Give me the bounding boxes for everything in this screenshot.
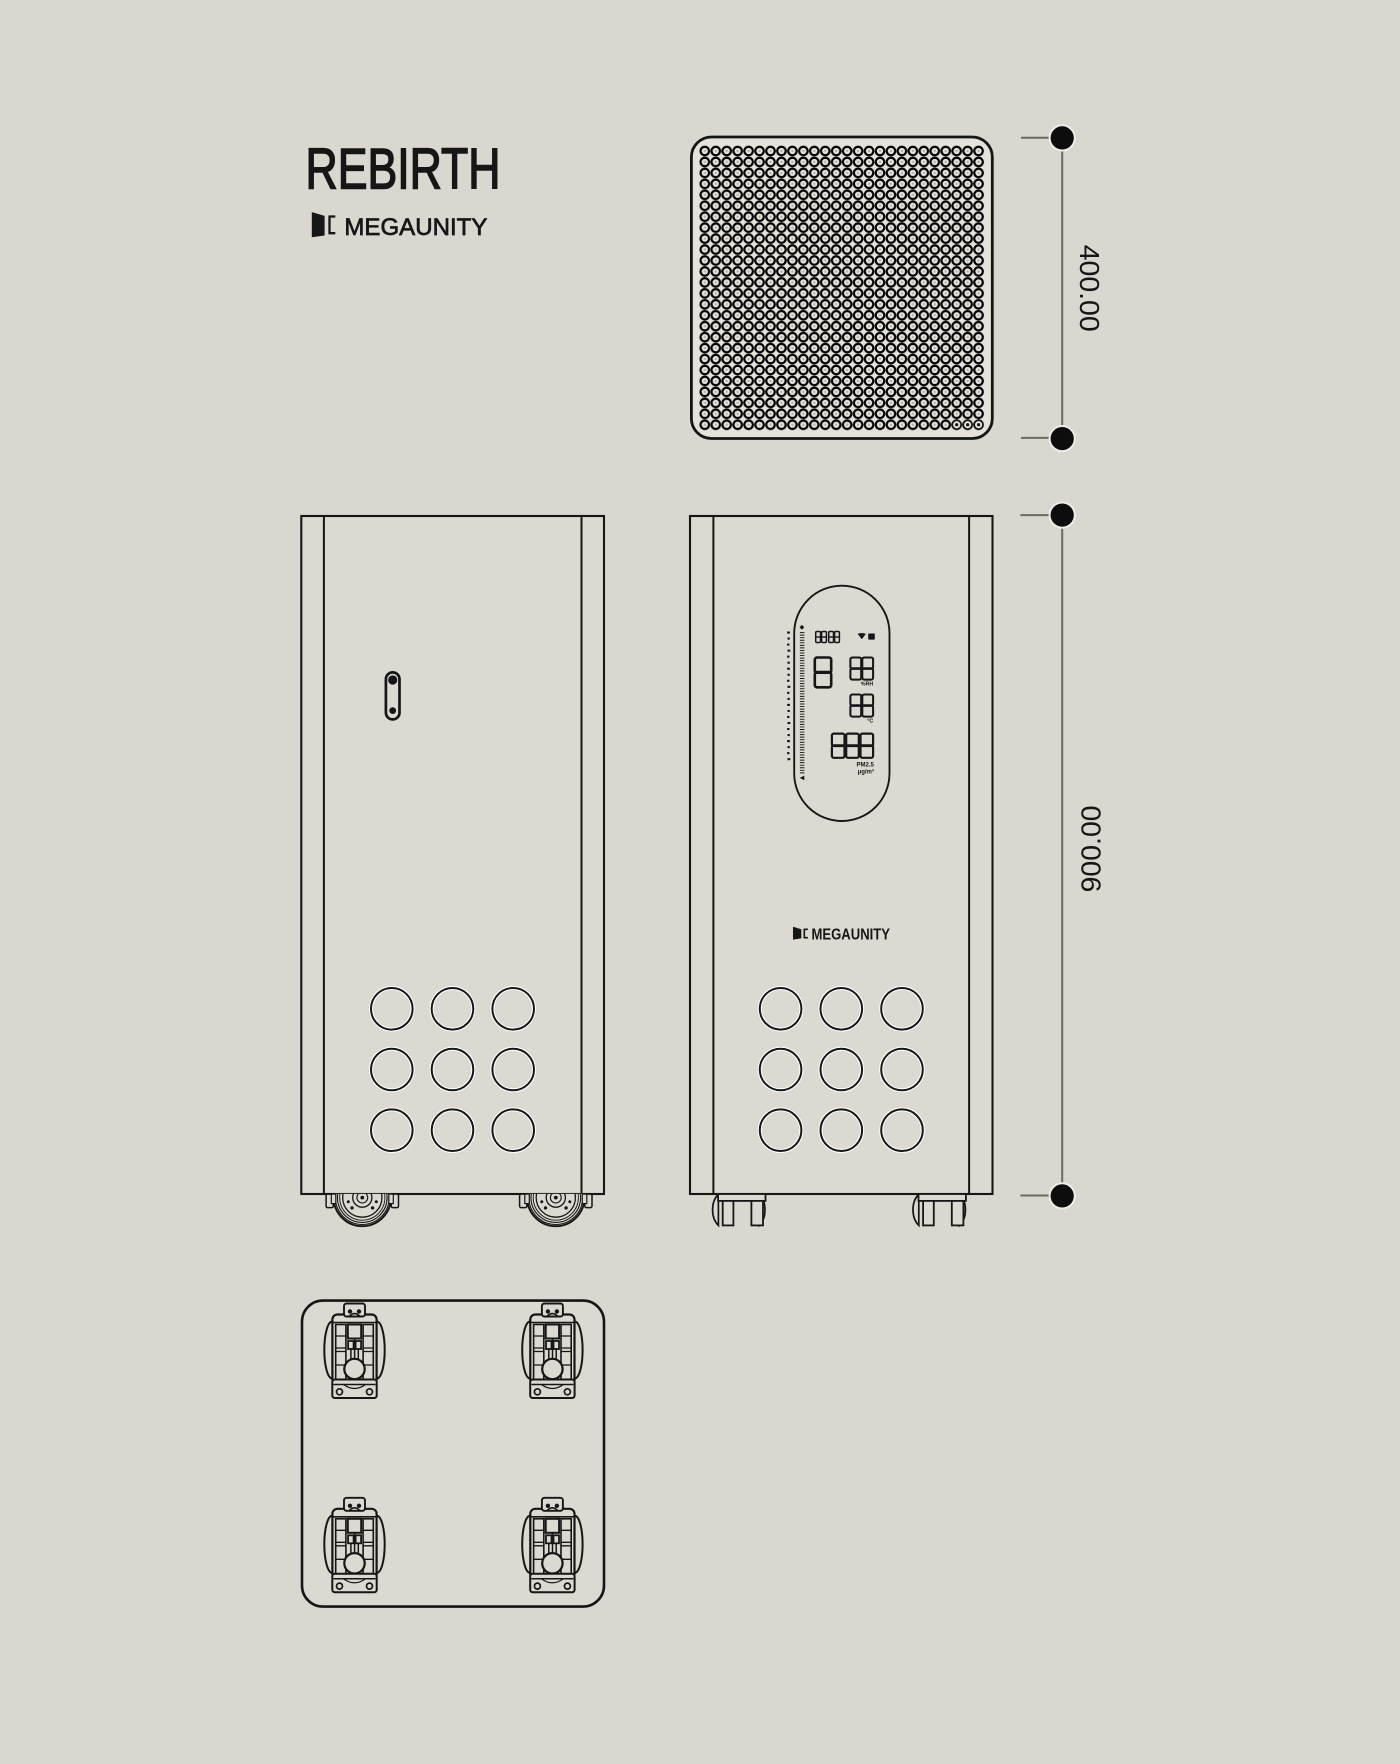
svg-text:PM2.5: PM2.5 [857, 763, 875, 769]
svg-text:MEGAUNITY: MEGAUNITY [812, 926, 891, 943]
svg-text:%RH: %RH [861, 681, 874, 687]
svg-text:µg/m³: µg/m³ [858, 769, 874, 776]
svg-text:400.00: 400.00 [1074, 245, 1105, 332]
svg-text:900.00: 900.00 [1076, 805, 1107, 892]
svg-text:MEGAUNITY: MEGAUNITY [344, 214, 487, 241]
svg-text:°C: °C [867, 719, 873, 725]
svg-text:REBIRTH: REBIRTH [306, 138, 501, 202]
